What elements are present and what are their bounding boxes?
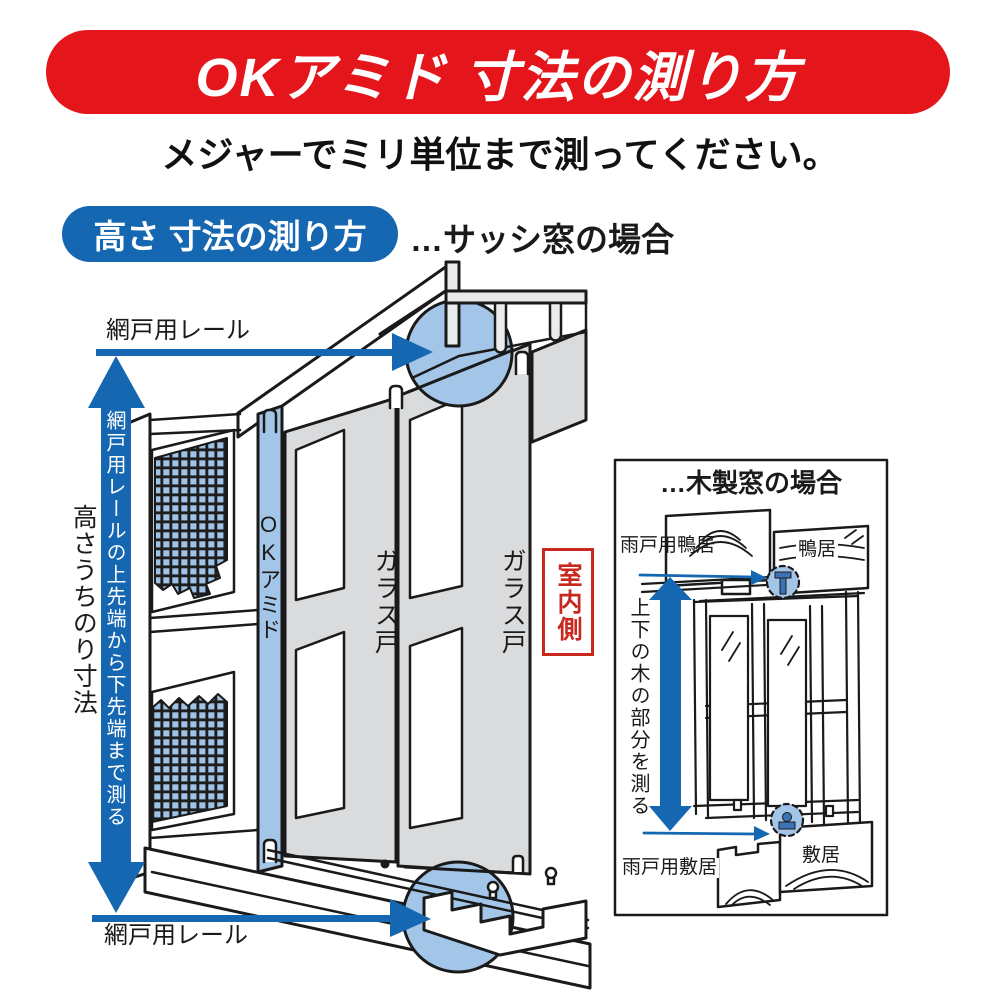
wood-window-panel [615, 460, 887, 915]
kamoi-detail-callout [767, 566, 799, 598]
rail-head [488, 882, 498, 898]
glass-door-2-label: ガラス戸 [499, 548, 525, 656]
storm-shikii-label: 雨戸用敷居 [620, 858, 719, 878]
door-hanger-hook [264, 410, 276, 432]
inner-height-label: 高さうちのり寸法 [70, 504, 96, 716]
door-hanger-hook [516, 352, 528, 374]
rail-label-bottom: 網戸用レール [104, 923, 248, 948]
screen-mesh-top [155, 438, 227, 598]
rail-label-top: 網戸用レール [106, 318, 250, 343]
glass-doors [285, 330, 586, 874]
page-title: OKアミド 寸法の測り方 [196, 33, 801, 112]
shikii-label: 敷居 [800, 846, 842, 866]
wood-measure-note: 上下の木の部分を測る [627, 597, 648, 817]
screen-mesh-bottom [152, 694, 227, 822]
screen-door-label: OKアミド [257, 512, 280, 643]
sash-case-label: …サッシ窓の場合 [410, 213, 674, 261]
screen-door [126, 406, 282, 880]
kamoi-label: 鴨居 [796, 540, 838, 560]
sash-measure-note: 網戸用レールの上先端から下先端まで測る [103, 410, 124, 828]
indoor-side-badge: 室内側 [542, 548, 594, 656]
title-banner: OKアミド 寸法の測り方 [46, 30, 950, 114]
height-section-badge: 高さ 寸法の測り方 [62, 206, 398, 262]
shikii-detail-callout [771, 804, 803, 836]
height-section-badge-label: 高さ 寸法の測り方 [93, 210, 366, 258]
rail-head [546, 868, 556, 884]
glass-door-1-label: ガラス戸 [372, 548, 398, 656]
indoor-side-label: 室内側 [550, 562, 586, 643]
page: OKアミド 寸法の測り方 メジャーでミリ単位まで測ってください。 高さ 寸法の測… [0, 0, 1000, 1000]
wood-case-title: …木製窓の場合 [617, 470, 885, 497]
door-hanger-hook [390, 386, 402, 408]
storm-kamoi-label: 雨戸用鴨居 [620, 536, 715, 556]
subtitle: メジャーでミリ単位まで測ってください。 [0, 126, 1000, 178]
